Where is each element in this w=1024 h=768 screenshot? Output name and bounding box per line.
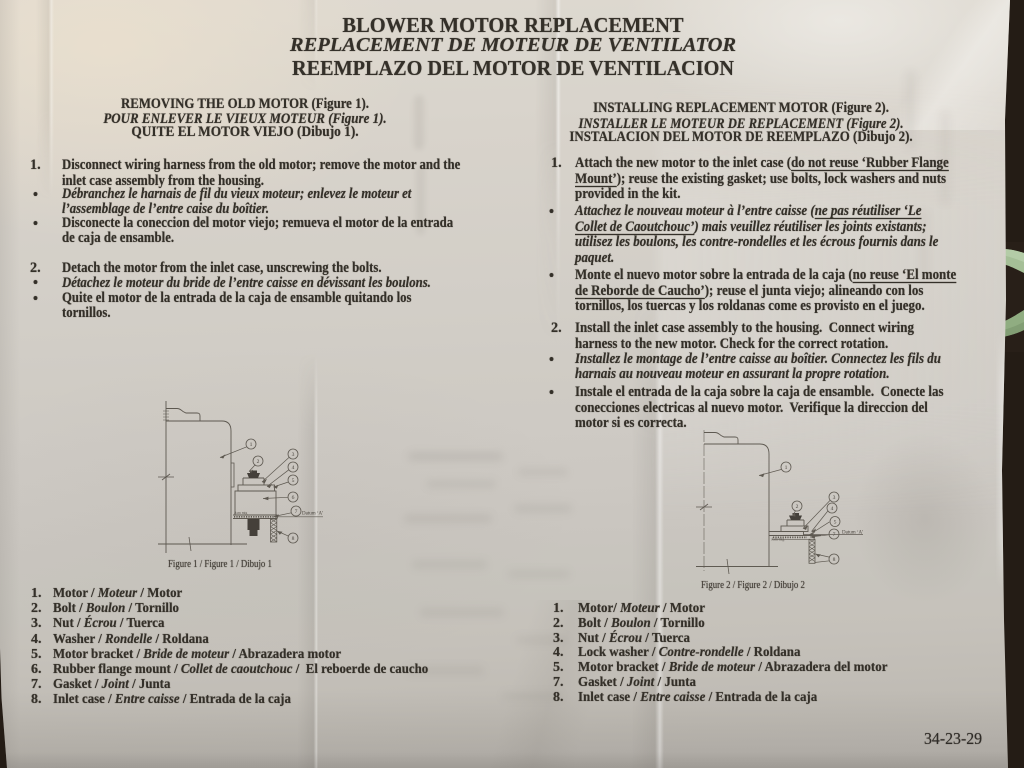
svg-text:Asm mtg: Asm mtg: [771, 538, 784, 542]
svg-text:6: 6: [292, 495, 295, 501]
svg-text:2: 2: [257, 459, 260, 465]
svg-text:7: 7: [295, 509, 298, 515]
svg-text:3: 3: [833, 495, 836, 501]
svg-text:1: 1: [250, 442, 253, 448]
svg-text:8: 8: [292, 536, 295, 542]
svg-text:5: 5: [834, 519, 837, 525]
svg-text:Datum ‘A’: Datum ‘A’: [842, 530, 864, 536]
svg-text:4: 4: [292, 465, 295, 471]
svg-text:5: 5: [292, 478, 295, 484]
svg-text:1: 1: [785, 465, 788, 471]
svg-text:4: 4: [831, 506, 834, 512]
svg-text:Datum ‘A’: Datum ‘A’: [302, 511, 324, 517]
svg-text:8: 8: [833, 557, 836, 563]
svg-text:3: 3: [292, 452, 295, 458]
svg-text:Asm mtg: Asm mtg: [234, 511, 247, 515]
svg-text:2: 2: [796, 504, 799, 510]
svg-text:7: 7: [833, 532, 836, 538]
